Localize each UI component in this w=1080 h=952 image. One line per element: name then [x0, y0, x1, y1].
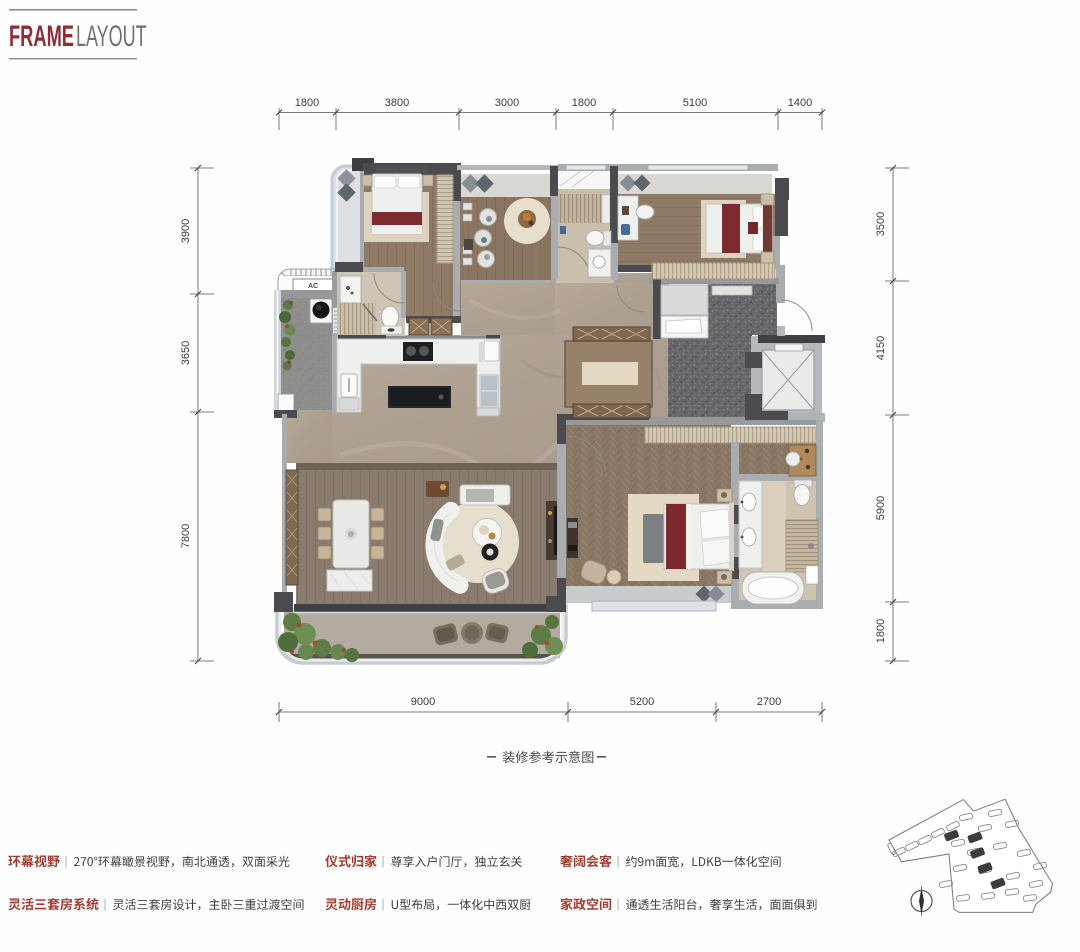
svg-text:5100: 5100: [683, 97, 707, 109]
svg-text:2700: 2700: [757, 696, 781, 708]
svg-text:1800: 1800: [572, 97, 596, 109]
svg-text:3800: 3800: [385, 97, 409, 109]
svg-text:3900: 3900: [180, 219, 192, 243]
svg-text:LAYOUT: LAYOUT: [76, 21, 147, 54]
svg-text:7800: 7800: [180, 524, 192, 548]
svg-text:FRAME: FRAME: [9, 21, 74, 54]
svg-text:AC: AC: [308, 283, 318, 290]
svg-text:5900: 5900: [875, 496, 887, 520]
svg-text:3000: 3000: [495, 97, 519, 109]
svg-text:1800: 1800: [875, 619, 887, 643]
svg-text:9000: 9000: [411, 696, 435, 708]
svg-text:1800: 1800: [295, 97, 319, 109]
svg-text:3650: 3650: [180, 341, 192, 365]
svg-text:1400: 1400: [788, 97, 812, 109]
svg-text:5200: 5200: [630, 696, 654, 708]
svg-text:4150: 4150: [875, 336, 887, 360]
svg-text:3500: 3500: [875, 212, 887, 236]
